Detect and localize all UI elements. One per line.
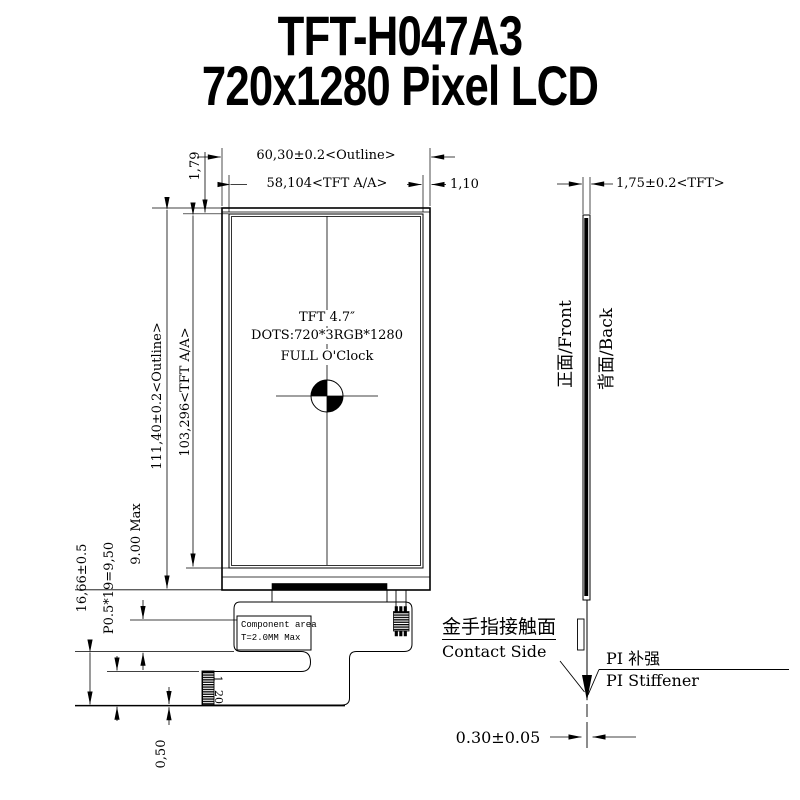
- component-area-note-line1: Component area: [241, 620, 317, 631]
- contact-side-label-en: Contact Side: [442, 642, 546, 661]
- component-area-note-line2: T=2.0MM Max: [241, 633, 300, 644]
- dim-outline-height: 111,40±0.2<Outline>: [150, 316, 166, 476]
- pi-stiffener-label-en: PI Stiffener: [606, 671, 699, 690]
- dim-fpc-thickness: 0.30±0.05: [450, 728, 546, 747]
- dim-panel-thickness: 1,75±0.2<TFT>: [616, 176, 725, 192]
- dim-connector-pitch: P0.5*19=9,50: [102, 536, 118, 640]
- dim-active-area-width: 58,104<TFT A/A>: [247, 176, 407, 192]
- pi-stiffener-label-cn: PI 补强: [606, 649, 660, 668]
- pin-number-last: 20: [210, 688, 226, 706]
- dim-top-edge-gap: 1,79: [188, 148, 204, 184]
- back-face-label: 背面/Back: [599, 299, 615, 399]
- panel-dots-label: DOTS:720*3RGB*1280: [237, 328, 417, 344]
- front-face-label: 正面/Front: [558, 289, 574, 399]
- panel-viewing-label: FULL O'Clock: [247, 349, 407, 365]
- pin-number-first: 1: [209, 672, 225, 686]
- lcd-dimension-drawing: TFT-H047A3 720x1280 Pixel LCD: [0, 0, 800, 800]
- dim-right-edge-gap: 1,10: [450, 177, 479, 193]
- contact-side-label-cn: 金手指接触面: [442, 615, 556, 640]
- dim-fpc-total-length: 16,66±0.5: [75, 536, 91, 620]
- dim-tail-thickness: 0,50: [154, 734, 170, 774]
- dim-component-height: 9.00 Max: [129, 502, 145, 566]
- dim-outline-width: 60,30±0.2<Outline>: [226, 148, 426, 164]
- panel-size-label: TFT 4.7″: [257, 310, 397, 326]
- dim-active-area-height: 103,296<TFT A/A>: [178, 322, 194, 462]
